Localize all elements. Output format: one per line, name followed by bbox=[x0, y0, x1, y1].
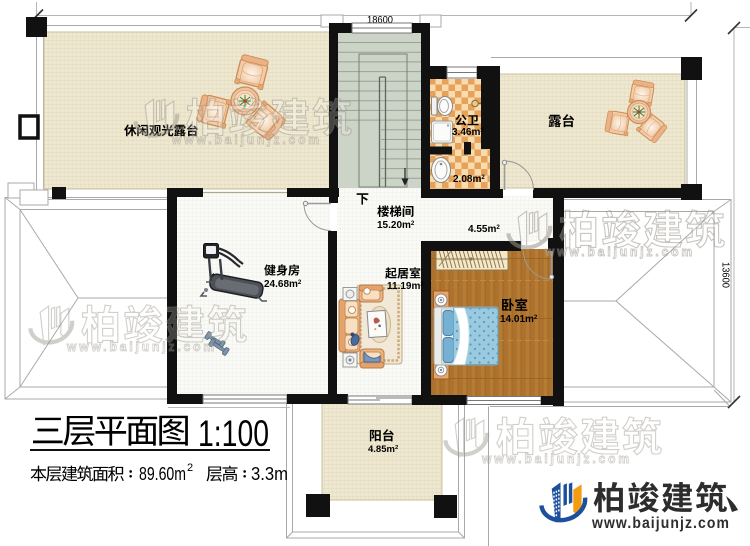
svg-text:2.08m2: 2.08m2 bbox=[453, 174, 485, 185]
svg-text:2: 2 bbox=[187, 462, 193, 474]
svg-text:13600: 13600 bbox=[720, 262, 731, 288]
svg-text:15.20m2: 15.20m2 bbox=[377, 220, 415, 231]
svg-text:14.01m2: 14.01m2 bbox=[500, 314, 538, 325]
svg-text:3.46m2: 3.46m2 bbox=[452, 127, 484, 138]
svg-text:4.85m2: 4.85m2 bbox=[368, 444, 399, 455]
svg-text:1:100: 1:100 bbox=[198, 413, 269, 454]
svg-text:www.baijunjz.com: www.baijunjz.com bbox=[591, 515, 730, 532]
svg-text:11.19m2: 11.19m2 bbox=[387, 281, 424, 292]
svg-text:89.60m: 89.60m bbox=[139, 464, 186, 484]
svg-text:4.55m2: 4.55m2 bbox=[468, 224, 500, 235]
svg-text:24.68m2: 24.68m2 bbox=[264, 279, 302, 290]
svg-text:3.3m: 3.3m bbox=[251, 464, 288, 484]
